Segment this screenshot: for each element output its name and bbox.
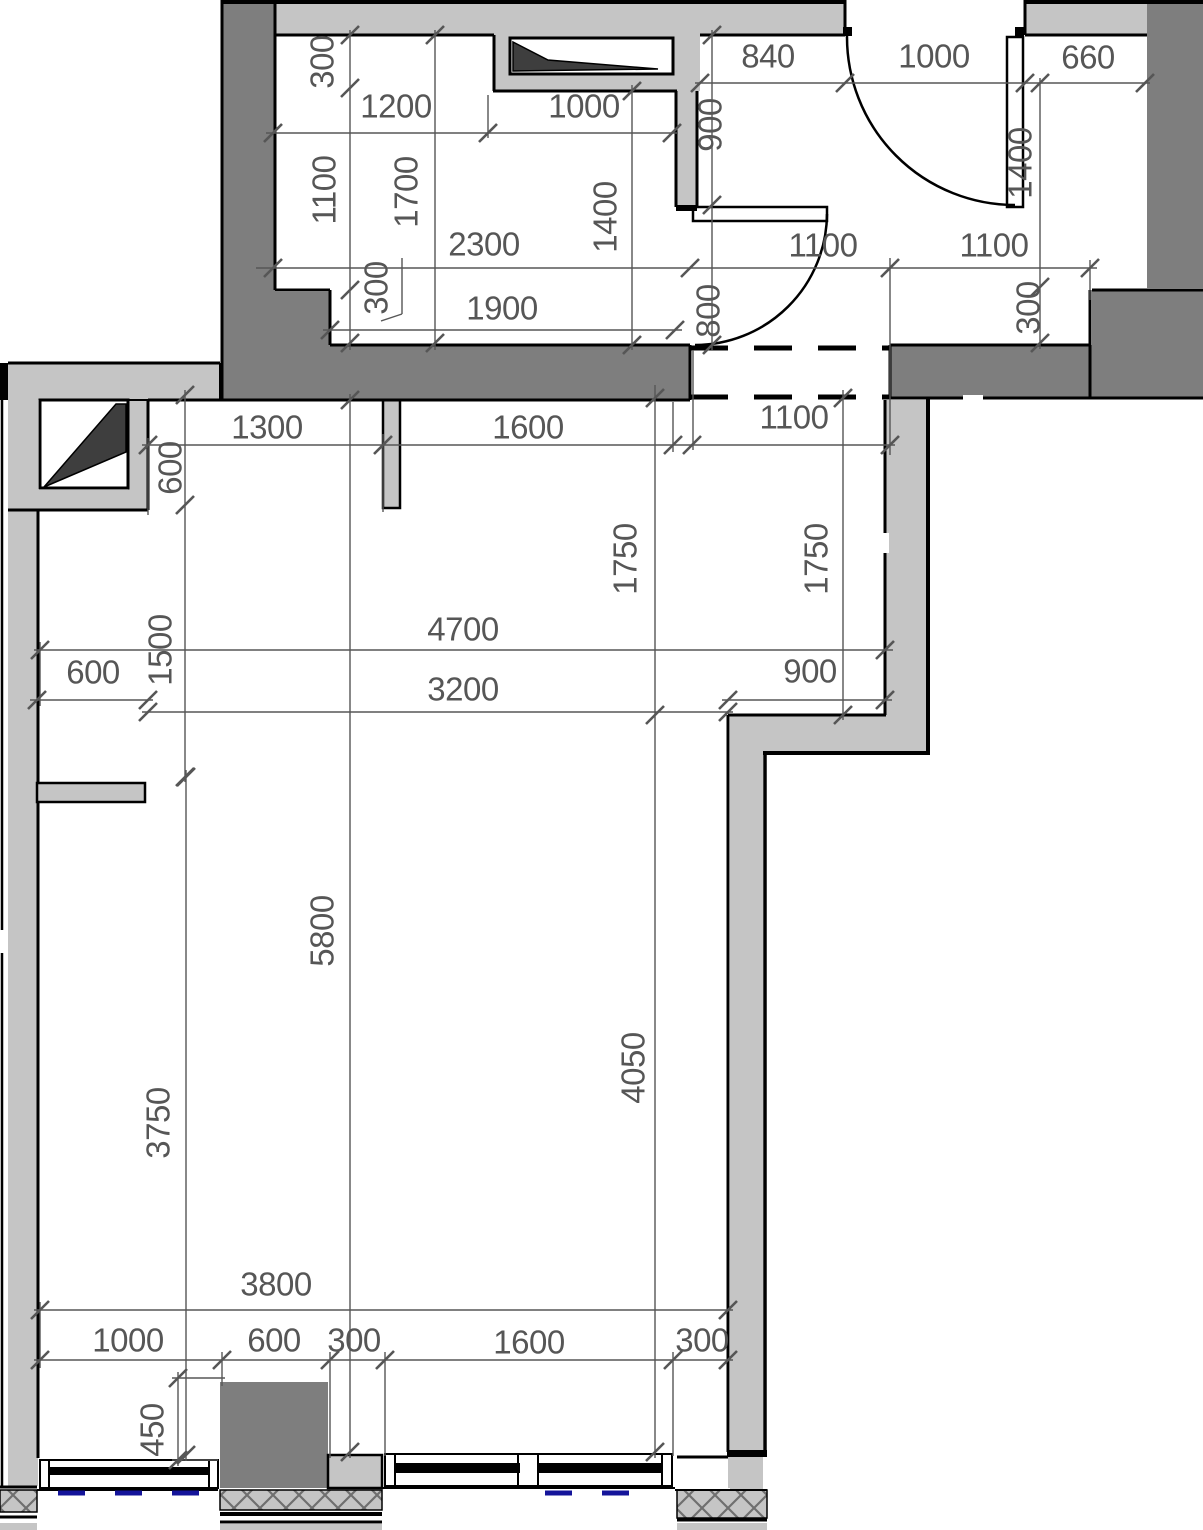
dimension-label: 1900: [466, 290, 538, 327]
balcony-hatch: [677, 1490, 767, 1518]
wall-dark: [330, 345, 690, 400]
wall-light: [1025, 3, 1147, 35]
dimension-label: 1100: [760, 399, 829, 436]
parapet-band: [220, 1524, 382, 1530]
dimension-label: 1000: [898, 38, 970, 75]
dimension-label: 1500: [142, 614, 179, 686]
dimension-label: 300: [1010, 281, 1047, 335]
dimension-label: 1200: [360, 88, 432, 125]
line-break-gap: [963, 395, 983, 402]
floor-plan-canvas: 3001200100084010006609001400110017001400…: [0, 0, 1203, 1530]
opening-box: [662, 1454, 672, 1486]
dimension-label: 900: [692, 98, 729, 152]
dimension-label: 1700: [388, 156, 425, 228]
opening-box: [385, 1454, 395, 1486]
parapet-band: [0, 1523, 37, 1530]
dimension-label: 1400: [587, 181, 624, 253]
wall-light: [275, 3, 845, 35]
solid-black-element: [48, 1467, 210, 1475]
solid-black-element: [0, 363, 8, 400]
dimension-label: 300: [358, 261, 395, 315]
wall-dark: [1147, 0, 1203, 288]
dimension-label: 3200: [427, 671, 499, 708]
dimension-label: 800: [690, 284, 727, 338]
wall-dark: [890, 345, 1092, 398]
dimension-label: 1100: [306, 155, 343, 224]
wall-light: [885, 400, 928, 715]
dimension-label: 5800: [304, 895, 341, 967]
opening-box: [518, 1454, 538, 1486]
opening-box: [209, 1460, 218, 1488]
wall-light-outlined: [383, 400, 400, 508]
dimension-label: 1300: [231, 409, 303, 446]
solid-black-element: [538, 1463, 662, 1473]
wall-light: [730, 715, 928, 753]
dimension-label: 450: [134, 1403, 171, 1457]
wall-light-outlined: [328, 1455, 382, 1488]
line-break-gap: [882, 533, 889, 553]
dimension-label: 300: [304, 35, 341, 89]
dimension-label: 1400: [1002, 127, 1039, 199]
dimension-label: 600: [66, 654, 120, 691]
wall-dark: [1092, 290, 1203, 398]
wall-light: [728, 1457, 763, 1488]
dimension-label: 3800: [240, 1266, 312, 1303]
dimension-label: 600: [247, 1322, 301, 1359]
balcony-hatch: [220, 1490, 382, 1510]
solid-black-element: [727, 1450, 767, 1457]
dimension-label: 1100: [789, 227, 858, 264]
dimension-label: 3750: [140, 1087, 177, 1159]
solid-black-element: [395, 1463, 520, 1473]
dimension-label: 900: [783, 653, 837, 690]
floor-plan: 3001200100084010006609001400110017001400…: [0, 0, 1203, 1530]
dimension-label: 300: [327, 1322, 381, 1359]
wall-light: [730, 753, 763, 1490]
parapet-band: [677, 1523, 767, 1530]
wall-dark: [222, 0, 275, 292]
wall-dark: [222, 292, 330, 400]
dimension-label: 1750: [607, 523, 644, 595]
dimension-label: 1750: [798, 523, 835, 595]
wall-dark: [220, 1382, 328, 1488]
dimension-label: 1000: [548, 88, 620, 125]
dimension-label: 300: [675, 1322, 729, 1359]
dimension-label: 1000: [92, 1322, 164, 1359]
line-break-gap: [0, 930, 6, 953]
opening-box: [693, 207, 827, 221]
wall-light-outlined: [37, 783, 145, 802]
wall-light: [38, 490, 148, 510]
dimension-label: 4050: [615, 1032, 652, 1104]
balcony-hatch: [0, 1490, 37, 1512]
dimension-label: 660: [1061, 39, 1115, 76]
dimension-label: 1100: [960, 227, 1029, 264]
wall-light: [8, 400, 38, 1486]
solid-black-element: [1015, 27, 1024, 36]
dimension-label: 600: [152, 441, 189, 495]
dimension-label: 1600: [492, 409, 564, 446]
dimension-label: 4700: [427, 611, 499, 648]
dimension-label: 2300: [448, 226, 520, 263]
solid-black-element: [676, 205, 697, 211]
dimension-label: 1600: [493, 1324, 565, 1361]
dimension-label: 840: [741, 38, 795, 75]
opening-box: [40, 1460, 49, 1488]
wall-light: [8, 363, 220, 400]
